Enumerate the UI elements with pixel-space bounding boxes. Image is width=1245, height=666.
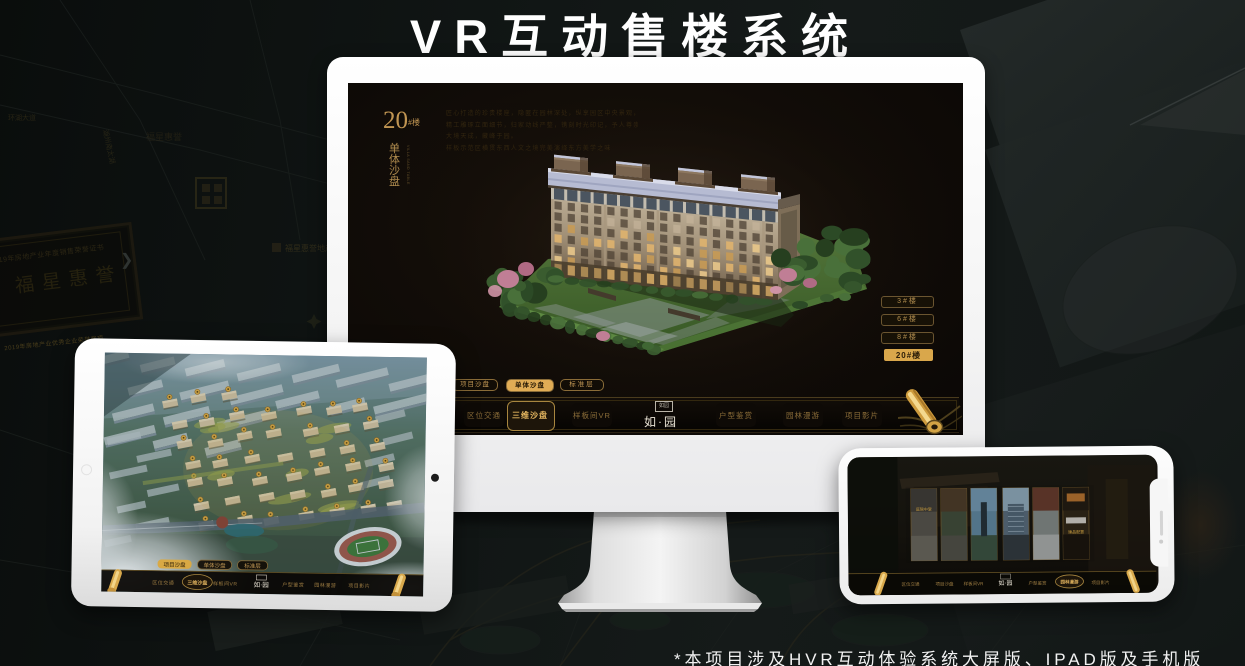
- svg-text:标准层: 标准层: [244, 562, 261, 570]
- svg-text:湖州南太湖: 湖州南太湖: [101, 129, 117, 165]
- svg-text:环湖大道: 环湖大道: [8, 113, 36, 122]
- svg-text:三维沙盘: 三维沙盘: [187, 579, 207, 586]
- svg-text:福星惠誉: 福星惠誉: [146, 131, 182, 142]
- svg-text:户型鉴赏: 户型鉴赏: [282, 581, 304, 588]
- svg-text:园林漫游: 园林漫游: [314, 582, 336, 589]
- svg-text:如·园: 如·园: [998, 579, 1012, 587]
- svg-text:样板间VR: 样板间VR: [213, 580, 238, 587]
- svg-text:福星惠誉地产: 福星惠誉地产: [285, 243, 333, 253]
- svg-text:项目影片: 项目影片: [348, 582, 370, 589]
- svg-text:如·园: 如·园: [254, 580, 269, 589]
- svg-text:区位交通: 区位交通: [152, 579, 174, 586]
